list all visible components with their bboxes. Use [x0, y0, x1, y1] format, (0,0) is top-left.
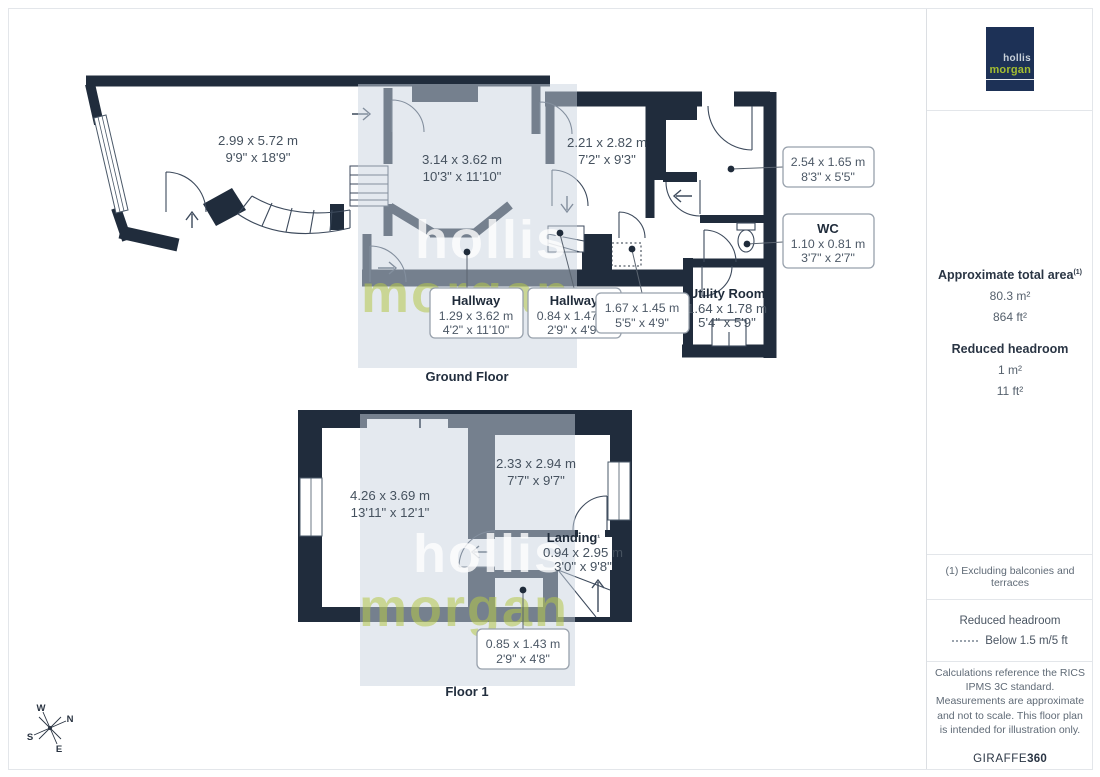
svg-text:hollis: hollis	[415, 210, 568, 270]
logo-hollis-text: hollis	[986, 54, 1031, 64]
compass-icon: N E S W	[27, 703, 74, 755]
svg-text:2'9" x 4'8": 2'9" x 4'8"	[496, 652, 550, 666]
svg-text:9'9" x 18'9": 9'9" x 18'9"	[226, 150, 291, 165]
ground-floor-title: Ground Floor	[425, 369, 508, 384]
label-box-085: 0.85 x 1.43 m 2'9" x 4'8"	[477, 629, 569, 669]
svg-text:1.10 x 0.81 m: 1.10 x 0.81 m	[791, 237, 866, 251]
disclaimer-section: Calculations reference the RICS IPMS 3C …	[927, 661, 1093, 769]
reduced-headroom-ft2: 11 ft²	[997, 384, 1023, 398]
svg-text:Utility Room: Utility Room	[689, 286, 766, 301]
svg-text:3'0" x 9'8": 3'0" x 9'8"	[554, 559, 612, 574]
svg-text:1.67 x 1.45 m: 1.67 x 1.45 m	[605, 301, 680, 315]
svg-text:2.21 x 2.82 m: 2.21 x 2.82 m	[567, 135, 647, 150]
legend-section: Reduced headroom Below 1.5 m/5 ft	[927, 599, 1093, 661]
label-box-167: 1.67 x 1.45 m 5'5" x 4'9"	[596, 293, 689, 333]
svg-text:0.85 x 1.43 m: 0.85 x 1.43 m	[486, 637, 561, 651]
total-area-ft2: 864 ft²	[993, 310, 1027, 324]
svg-text:1.29 x 3.62 m: 1.29 x 3.62 m	[439, 309, 514, 323]
svg-text:3'7" x 2'7": 3'7" x 2'7"	[801, 251, 855, 265]
svg-text:S: S	[27, 732, 33, 743]
footnote-section: (1) Excluding balconies and terraces	[927, 554, 1093, 599]
label-box-254: 2.54 x 1.65 m 8'3" x 5'5"	[783, 147, 874, 187]
footnote-ref: (1)	[1073, 268, 1082, 275]
svg-text:2'9" x 4'9": 2'9" x 4'9"	[547, 323, 601, 337]
logo-morgan-text: morgan	[986, 64, 1031, 76]
svg-text:Hallway: Hallway	[452, 293, 501, 308]
svg-text:10'3" x 11'10": 10'3" x 11'10"	[423, 169, 502, 184]
svg-text:7'7" x 9'7": 7'7" x 9'7"	[507, 473, 565, 488]
total-area-title: Approximate total area(1)	[938, 268, 1082, 282]
floorplan-canvas: hollis morgan hollis morgan 2.99 x 5.72 …	[0, 0, 926, 777]
label-box-wc: WC 1.10 x 0.81 m 3'7" x 2'7"	[783, 214, 874, 268]
giraffe360-logo: GIRAFFE360	[973, 753, 1047, 765]
svg-text:Landing¹: Landing¹	[547, 530, 601, 545]
svg-text:WC: WC	[817, 221, 839, 236]
hollis-morgan-logo: hollis morgan	[986, 27, 1034, 91]
svg-text:5'5" x 4'9": 5'5" x 4'9"	[615, 316, 669, 330]
svg-text:E: E	[56, 744, 62, 755]
svg-text:13'11" x 12'1": 13'11" x 12'1"	[351, 505, 430, 520]
info-sidebar: hollis morgan Approximate total area(1) …	[926, 8, 1093, 769]
legend-title: Reduced headroom	[959, 615, 1060, 627]
svg-text:1.64 x 1.78 m: 1.64 x 1.78 m	[687, 301, 767, 316]
svg-text:3.14 x 3.62 m: 3.14 x 3.62 m	[422, 152, 502, 167]
total-area-m2: 80.3 m²	[990, 289, 1031, 303]
floorplan-page: hollis morgan hollis morgan 2.99 x 5.72 …	[0, 0, 1100, 777]
svg-text:5'4" x 5'9": 5'4" x 5'9"	[698, 315, 756, 330]
svg-text:2.54 x 1.65 m: 2.54 x 1.65 m	[791, 155, 866, 169]
svg-text:0.94 x 2.95 m: 0.94 x 2.95 m	[543, 545, 623, 560]
area-summary-section: Approximate total area(1) 80.3 m² 864 ft…	[927, 110, 1093, 554]
reduced-headroom-m2: 1 m²	[998, 363, 1022, 377]
svg-text:4'2" x 11'10": 4'2" x 11'10"	[443, 323, 510, 337]
disclaimer-text: Calculations reference the RICS IPMS 3C …	[934, 666, 1086, 737]
svg-text:2.99 x 5.72 m: 2.99 x 5.72 m	[218, 133, 298, 148]
footnote-text: (1) Excluding balconies and terraces	[927, 565, 1093, 589]
reduced-headroom-title: Reduced headroom	[952, 342, 1069, 356]
svg-text:Hallway: Hallway	[550, 293, 599, 308]
svg-text:N: N	[67, 714, 74, 725]
svg-text:2.33 x 2.94 m: 2.33 x 2.94 m	[496, 456, 576, 471]
svg-text:7'2" x 9'3": 7'2" x 9'3"	[578, 152, 636, 167]
legend-item: Below 1.5 m/5 ft	[985, 635, 1067, 647]
svg-text:4.26 x 3.69 m: 4.26 x 3.69 m	[350, 488, 430, 503]
logo-section: hollis morgan	[927, 8, 1093, 110]
svg-text:W: W	[37, 703, 46, 714]
svg-text:8'3" x 5'5": 8'3" x 5'5"	[801, 170, 855, 184]
floor1-title: Floor 1	[445, 684, 488, 699]
dotted-line-icon	[952, 640, 978, 642]
toilet-icon	[737, 223, 755, 252]
label-box-hallway1: Hallway 1.29 x 3.62 m 4'2" x 11'10"	[430, 288, 523, 338]
logo-divider	[986, 79, 1034, 80]
